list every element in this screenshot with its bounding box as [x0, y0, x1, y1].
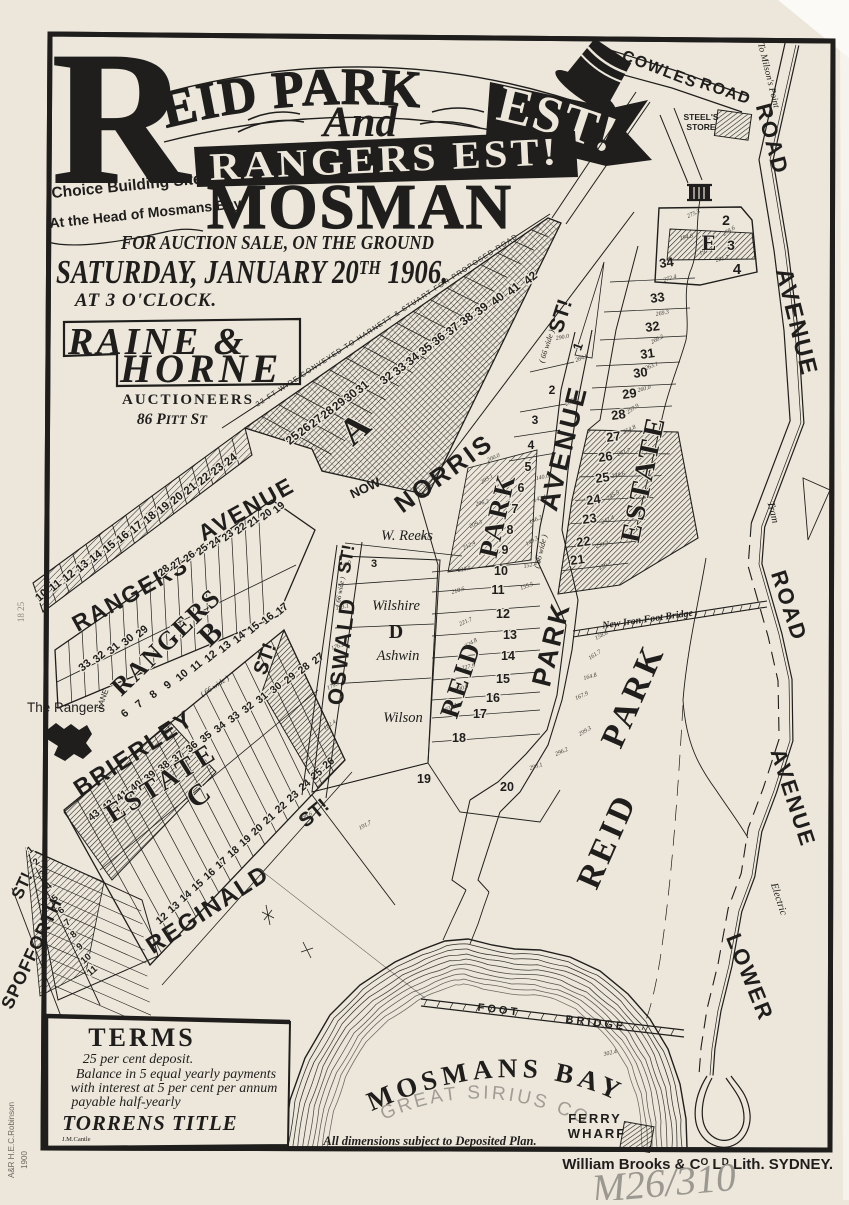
svg-text:26: 26 [597, 448, 613, 465]
svg-text:2: 2 [722, 212, 730, 228]
svg-text:AT 3 O'CLOCK.: AT 3 O'CLOCK. [74, 290, 217, 311]
svg-text:SATURDAY, JANUARY 20TH 1906.: SATURDAY, JANUARY 20TH 1906. [56, 254, 448, 291]
svg-text:TORRENS TITLE: TORRENS TITLE [62, 1111, 237, 1135]
svg-text:28: 28 [610, 406, 626, 423]
svg-text:22: 22 [575, 533, 591, 550]
svg-text:with interest at 5 per cent pe: with interest at 5 per cent per annum [71, 1081, 278, 1096]
svg-text:19: 19 [417, 772, 431, 786]
svg-text:15: 15 [496, 672, 510, 686]
svg-text:25: 25 [594, 469, 610, 486]
svg-text:29: 29 [621, 385, 637, 402]
svg-text:Balance in 5 equal yearly paym: Balance in 5 equal yearly payments [76, 1067, 277, 1082]
svg-text:10: 10 [494, 564, 508, 578]
svg-text:24: 24 [585, 491, 602, 508]
svg-text:20: 20 [500, 780, 514, 794]
svg-text:13: 13 [503, 628, 517, 642]
svg-text:J.M.Cantle: J.M.Cantle [62, 1136, 91, 1143]
svg-text:TERMS: TERMS [88, 1023, 195, 1052]
svg-text:11: 11 [491, 583, 504, 597]
svg-text:FOR AUCTION SALE, ON THE GROUN: FOR AUCTION SALE, ON THE GROUND [120, 232, 434, 254]
svg-text:86 PITT ST: 86 PITT ST [137, 411, 208, 428]
svg-text:21: 21 [569, 551, 585, 568]
svg-text:23: 23 [581, 510, 597, 527]
svg-text:Ashwin: Ashwin [376, 648, 420, 664]
svg-text:payable half-yearly: payable half-yearly [70, 1095, 181, 1110]
svg-text:25 per cent deposit.: 25 per cent deposit. [83, 1052, 193, 1067]
svg-text:17: 17 [473, 707, 487, 721]
svg-text:STEEL'S: STEEL'S [683, 112, 718, 122]
svg-text:31: 31 [639, 345, 655, 362]
svg-text:18 25: 18 25 [16, 601, 26, 622]
svg-text:D: D [389, 621, 403, 643]
svg-text:2: 2 [549, 383, 556, 397]
svg-text:FERRY: FERRY [568, 1111, 622, 1126]
svg-text:14: 14 [501, 649, 515, 663]
svg-text:A&R H.E.C.Robinson: A&R H.E.C.Robinson [7, 1102, 16, 1178]
svg-text:STORE: STORE [686, 122, 715, 132]
svg-text:5: 5 [525, 460, 532, 474]
svg-text:All dimensions subject to Depo: All dimensions subject to Deposited Plan… [322, 1134, 536, 1148]
svg-text:27: 27 [605, 428, 621, 445]
svg-text:Wilson: Wilson [383, 710, 422, 726]
svg-text:16: 16 [486, 691, 500, 705]
svg-text:33: 33 [649, 289, 665, 306]
svg-text:4: 4 [733, 261, 742, 278]
svg-text:Wilshire: Wilshire [372, 598, 420, 614]
svg-text:4: 4 [528, 438, 535, 452]
svg-text:AUCTIONEERS: AUCTIONEERS [122, 392, 254, 408]
svg-text:1900: 1900 [20, 1151, 29, 1169]
svg-text:The Rangers: The Rangers [27, 700, 105, 715]
svg-text:3: 3 [532, 413, 539, 427]
svg-text:WHARF: WHARF [568, 1126, 626, 1141]
svg-text:12: 12 [496, 607, 510, 621]
svg-text:3: 3 [371, 558, 377, 570]
svg-text:32: 32 [644, 318, 660, 335]
svg-text:18: 18 [452, 731, 466, 745]
svg-text:HORNE: HORNE [119, 346, 282, 391]
svg-text:3: 3 [727, 237, 735, 253]
